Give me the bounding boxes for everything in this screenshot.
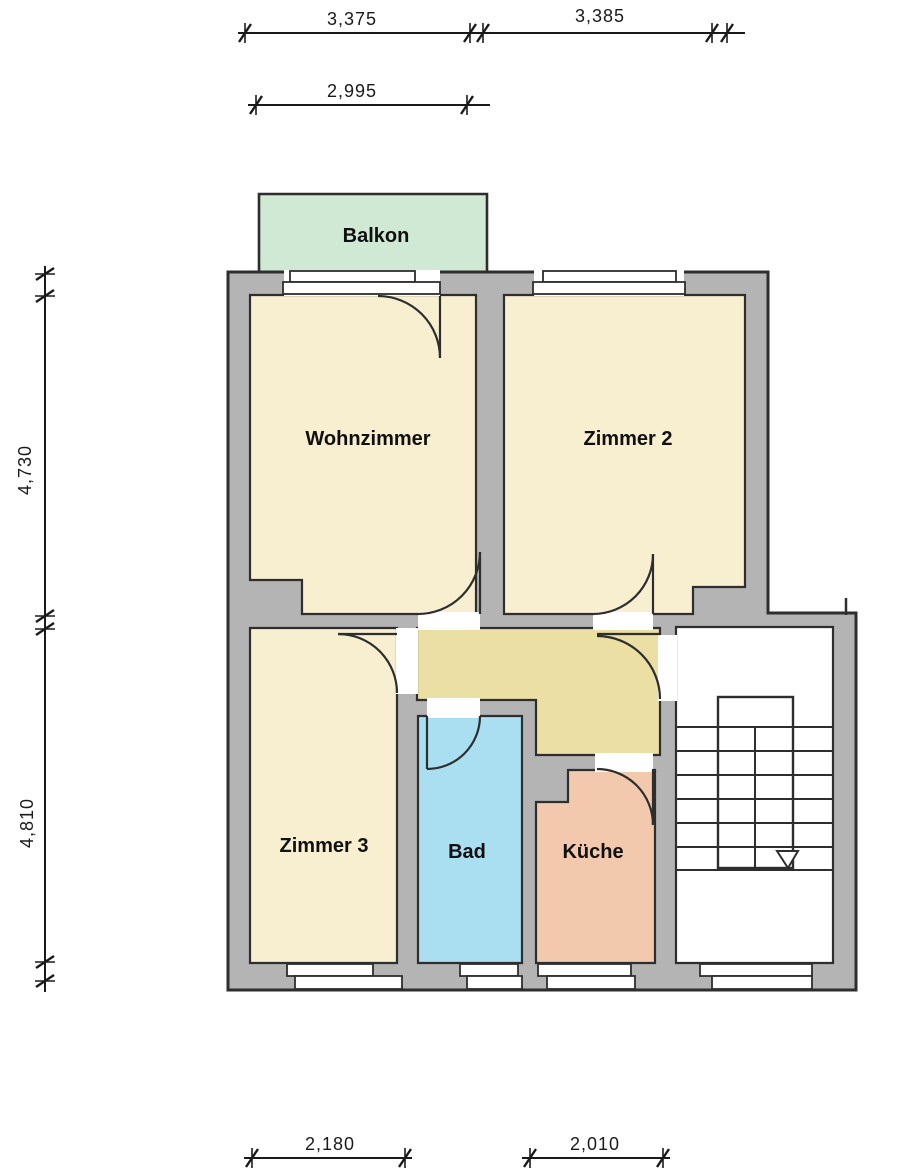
floorplan-drawing: Balkon Wohnzimmer Zimmer 2 Zimmer 3 Bad … [0,0,905,1172]
dim-label-top-inner: 2,995 [327,81,377,101]
window-zimmer3-inner [287,964,373,976]
window-stairwell-inner [700,964,812,976]
dimension-top: 3,375 3,385 [238,6,745,43]
dim-label-left-lower: 4,810 [17,798,37,848]
window-wohnzimmer-inner [283,282,440,294]
dimension-left: 4,730 4,810 [15,266,55,992]
room-zimmer3 [250,628,397,963]
label-bad: Bad [448,841,486,863]
window-zimmer2-inner [533,282,685,294]
door-gap-wohnzimmer [418,612,480,630]
dim-label-top-left: 3,375 [327,9,377,29]
window-kueche-outer [547,976,635,989]
window-bad-outer [467,976,522,989]
room-wohnzimmer [250,295,476,614]
window-zimmer2-outer [543,271,676,282]
room-bad [418,716,522,963]
dim-label-left-upper: 4,730 [15,445,35,495]
room-zimmer2 [504,295,745,614]
label-zimmer2: Zimmer 2 [584,428,673,450]
label-balkon: Balkon [343,225,410,247]
dim-label-top-right: 3,385 [575,6,625,26]
dim-label-bottom-right: 2,010 [570,1134,620,1154]
dimension-top-inner: 2,995 [248,81,490,115]
door-gap-bad [427,698,480,718]
window-wohnzimmer-outer [290,271,415,282]
dimension-bottom: 2,180 2,010 [244,1134,670,1168]
window-bad-inner [460,964,518,976]
dim-label-bottom-left: 2,180 [305,1134,355,1154]
floorplan-page: Balkon Wohnzimmer Zimmer 2 Zimmer 3 Bad … [0,0,905,1172]
door-gap-entrance [658,635,677,701]
label-kueche: Küche [562,841,623,863]
label-wohnzimmer: Wohnzimmer [305,428,430,450]
window-stairwell-outer [712,976,812,989]
door-gap-zimmer2 [593,612,653,630]
label-zimmer3: Zimmer 3 [280,835,369,857]
window-zimmer3-outer [295,976,402,989]
window-kueche-inner [538,964,631,976]
door-gap-zimmer3 [396,628,418,694]
